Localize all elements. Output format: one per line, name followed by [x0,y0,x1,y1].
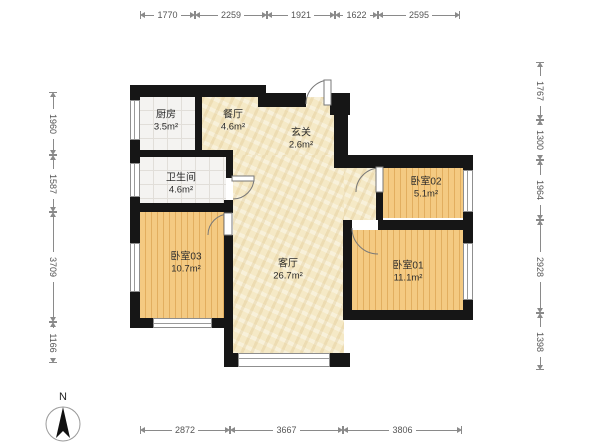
dimension-left-3: 3709 [46,212,60,322]
room-area: 11.1m² [392,272,423,284]
room-label-bedroom03: 卧室03 10.7m² [170,250,201,275]
dimension-left-1: 1960 [46,92,60,155]
dimension-bottom-3: 3806 [343,423,462,437]
bathroom-door-leaf [232,176,254,181]
dimension-left-2: 1587 [46,155,60,212]
room-name: 卧室03 [170,250,201,263]
room-area: 26.7m² [273,270,303,282]
bedroom01-door-arc [352,228,378,254]
room-label-dining: 餐厅 4.6m² [221,108,245,133]
room-area: 4.6m² [166,184,196,196]
dimension-right-5: 1398 [533,313,547,370]
entrance-door-leaf [324,80,331,105]
room-area: 10.7m² [170,263,201,275]
door-layer [0,0,600,448]
dimension-top-2: 2259 [195,8,267,22]
floor-plan: 厨房 3.5m² 餐厅 4.6m² 玄关 2.6m² 卫生间 4.6m² 卧室0… [0,0,600,448]
compass: N [36,388,92,446]
dimension-top-3: 1921 [267,8,335,22]
room-area: 2.6m² [289,139,313,151]
room-area: 3.5m² [154,121,178,133]
bedroom03-door-leaf [224,213,232,235]
room-name: 卫生间 [166,171,196,184]
room-name: 卧室02 [410,175,441,188]
room-name: 玄关 [289,126,313,139]
bedroom01-door-opening [352,220,378,230]
room-name: 厨房 [154,108,178,121]
dimension-left-4: 1166 [46,322,60,363]
dimension-bottom-2: 3667 [230,423,343,437]
room-label-bedroom02: 卧室02 5.1m² [410,175,441,200]
room-label-entry: 玄关 2.6m² [289,126,313,151]
dimension-right-4: 2928 [533,220,547,313]
room-area: 5.1m² [410,188,441,200]
room-label-living: 客厅 26.7m² [273,257,303,282]
dimension-right-1: 1767 [533,62,547,120]
compass-needle-icon [56,407,70,438]
dimension-top-5: 2595 [378,8,460,22]
room-label-kitchen: 厨房 3.5m² [154,108,178,133]
room-label-bedroom01: 卧室01 11.1m² [392,259,423,284]
room-name: 餐厅 [221,108,245,121]
dimension-top-4: 1622 [335,8,378,22]
room-label-bathroom: 卫生间 4.6m² [166,171,196,196]
bedroom02-door-leaf [376,167,383,192]
dimension-top-1: 1770 [140,8,195,22]
dimension-right-3: 1964 [533,160,547,220]
dimension-bottom-1: 2872 [140,423,230,437]
compass-north-label: N [59,391,67,403]
room-name: 客厅 [273,257,303,270]
dimension-right-2: 1300 [533,120,547,160]
room-area: 4.6m² [221,121,245,133]
room-name: 卧室01 [392,259,423,272]
